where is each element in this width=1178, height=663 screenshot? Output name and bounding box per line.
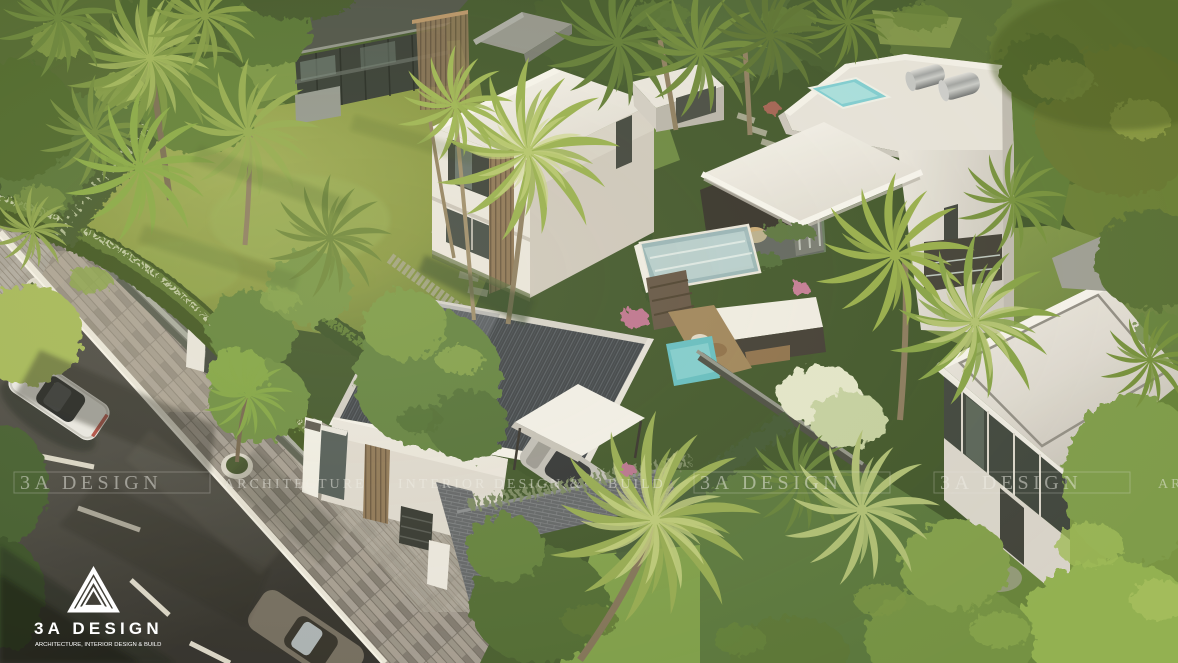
svg-text:INTERIOR DESIGN &: INTERIOR DESIGN & <box>398 477 584 492</box>
svg-text:ARCHITECTURE: ARCHITECTURE <box>224 477 367 492</box>
svg-text:AR: AR <box>1158 477 1178 492</box>
svg-text:BUILD: BUILD <box>608 477 666 492</box>
svg-text:3A DESIGN: 3A DESIGN <box>700 472 842 494</box>
svg-text:3A DESIGN: 3A DESIGN <box>20 472 162 494</box>
svg-text:3A DESIGN: 3A DESIGN <box>34 619 163 638</box>
svg-text:3A DESIGN: 3A DESIGN <box>940 472 1082 494</box>
svg-text:ARCHITECTURE, INTERIOR DESIGN: ARCHITECTURE, INTERIOR DESIGN & BUILD <box>35 642 161 648</box>
